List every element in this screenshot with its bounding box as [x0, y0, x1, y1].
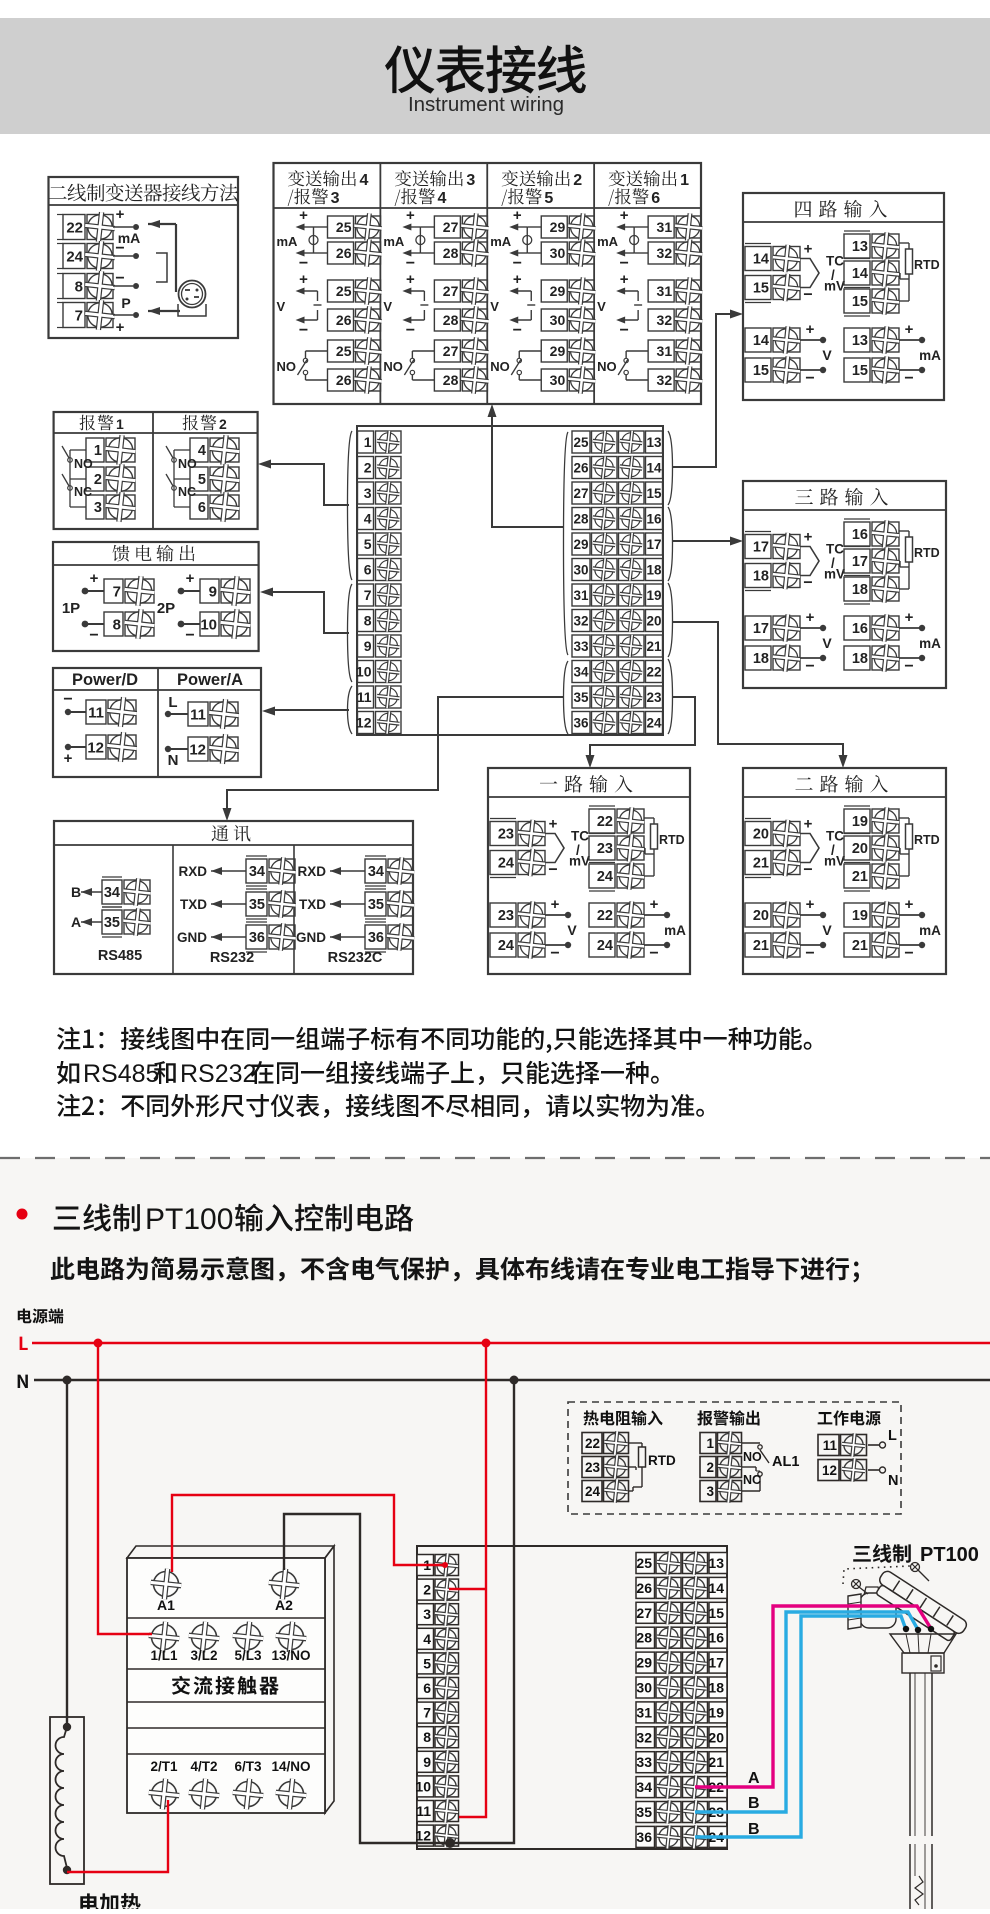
- svg-text:GND: GND: [177, 930, 207, 945]
- svg-text:25: 25: [336, 343, 352, 359]
- svg-text:V: V: [490, 299, 499, 314]
- svg-text:−: −: [803, 862, 812, 879]
- svg-text:13: 13: [852, 239, 868, 255]
- svg-text:NO: NO: [490, 359, 510, 374]
- svg-text:N: N: [168, 752, 179, 769]
- svg-text:9: 9: [364, 638, 372, 654]
- svg-text:+: +: [406, 271, 415, 288]
- svg-text:+: +: [806, 609, 815, 626]
- svg-text:2: 2: [364, 460, 372, 476]
- svg-text:2: 2: [706, 1460, 714, 1475]
- svg-text:29: 29: [636, 1655, 652, 1671]
- svg-text:−: −: [63, 691, 72, 708]
- svg-text:19: 19: [708, 1704, 724, 1720]
- svg-text:6: 6: [651, 190, 660, 207]
- svg-text:2: 2: [219, 416, 227, 432]
- svg-text:Power/A: Power/A: [177, 671, 243, 689]
- svg-text:29: 29: [550, 283, 566, 299]
- svg-text:11: 11: [823, 1438, 838, 1453]
- svg-text:+: +: [806, 896, 815, 913]
- svg-text:18: 18: [708, 1680, 724, 1696]
- svg-text:20: 20: [753, 908, 769, 924]
- svg-text:4: 4: [360, 172, 369, 189]
- svg-text:13: 13: [708, 1555, 724, 1571]
- svg-text:21: 21: [753, 938, 769, 954]
- svg-text:+: +: [186, 570, 195, 587]
- svg-text:18: 18: [852, 651, 868, 667]
- svg-text:34: 34: [104, 885, 120, 901]
- svg-text:−: −: [649, 945, 658, 962]
- svg-text:V: V: [822, 635, 832, 651]
- svg-text:+: +: [116, 319, 125, 336]
- svg-text:31: 31: [573, 588, 589, 603]
- svg-text:10: 10: [356, 664, 372, 680]
- svg-text:19: 19: [646, 588, 661, 603]
- svg-text:21: 21: [852, 938, 868, 954]
- svg-text:14/NO: 14/NO: [271, 1759, 310, 1774]
- svg-text:26: 26: [336, 312, 352, 328]
- svg-text:15: 15: [753, 281, 769, 297]
- svg-text:24: 24: [585, 1484, 601, 1499]
- svg-text:32: 32: [657, 245, 673, 261]
- svg-text:19: 19: [852, 814, 868, 830]
- svg-text:12: 12: [415, 1828, 431, 1844]
- svg-text:mA: mA: [919, 348, 941, 363]
- svg-text:RTD: RTD: [659, 833, 685, 847]
- svg-text:34: 34: [636, 1779, 652, 1795]
- svg-text:12: 12: [822, 1463, 837, 1478]
- svg-text:mA: mA: [919, 636, 941, 651]
- svg-text:V: V: [383, 299, 392, 314]
- svg-text:35: 35: [573, 690, 589, 705]
- svg-text:3: 3: [466, 172, 475, 189]
- svg-text:+: +: [406, 207, 415, 224]
- svg-text:−: −: [513, 255, 522, 272]
- svg-text:TC: TC: [826, 542, 844, 557]
- svg-text:NO: NO: [178, 457, 197, 471]
- svg-text:Power/D: Power/D: [72, 671, 138, 689]
- svg-text:17: 17: [646, 537, 661, 552]
- svg-text:36: 36: [573, 716, 589, 731]
- svg-text:B: B: [748, 1821, 760, 1838]
- svg-text:31: 31: [657, 343, 673, 359]
- svg-text:−: −: [406, 322, 415, 339]
- svg-text:V: V: [597, 299, 606, 314]
- svg-text:26: 26: [336, 245, 352, 261]
- svg-text:23: 23: [585, 1460, 601, 1475]
- svg-text:4: 4: [198, 443, 206, 459]
- svg-text:−: −: [550, 945, 559, 962]
- svg-text:−: −: [805, 370, 814, 387]
- svg-text:−: −: [299, 322, 308, 339]
- svg-text:29: 29: [550, 343, 566, 359]
- svg-text:10: 10: [200, 616, 217, 633]
- svg-text:1/L1: 1/L1: [150, 1648, 178, 1663]
- svg-text:9: 9: [209, 583, 217, 600]
- svg-text:27: 27: [443, 283, 459, 299]
- svg-text:2: 2: [423, 1582, 431, 1598]
- svg-text:TXD: TXD: [299, 897, 326, 912]
- svg-text:−: −: [513, 322, 522, 339]
- svg-text:−: −: [89, 627, 98, 644]
- svg-text:18: 18: [852, 582, 868, 598]
- svg-text:26: 26: [336, 372, 352, 388]
- svg-text:24: 24: [498, 938, 514, 954]
- svg-text:23: 23: [646, 690, 662, 705]
- svg-text:36: 36: [368, 930, 384, 946]
- svg-text:36: 36: [636, 1829, 652, 1845]
- svg-text:RTD: RTD: [648, 1453, 676, 1468]
- svg-text:−: −: [904, 370, 913, 387]
- svg-text:20: 20: [708, 1729, 724, 1745]
- svg-text:30: 30: [550, 312, 566, 328]
- svg-text:30: 30: [573, 563, 588, 578]
- svg-text:15: 15: [852, 363, 868, 379]
- svg-text:mA: mA: [664, 923, 686, 938]
- svg-text:7: 7: [113, 583, 121, 600]
- svg-text:21: 21: [753, 856, 769, 872]
- svg-text:+: +: [806, 321, 815, 338]
- svg-text:30: 30: [636, 1680, 652, 1696]
- svg-text:15: 15: [852, 294, 868, 310]
- svg-text:36: 36: [249, 930, 265, 946]
- svg-text:5: 5: [364, 536, 372, 552]
- svg-text:14: 14: [646, 461, 662, 476]
- svg-text:+: +: [549, 816, 558, 833]
- svg-text:6: 6: [364, 562, 372, 578]
- svg-text:P: P: [121, 295, 130, 311]
- svg-text:5/L3: 5/L3: [234, 1648, 262, 1663]
- svg-text:13: 13: [852, 333, 868, 349]
- svg-text:+: +: [513, 271, 522, 288]
- svg-text:+: +: [513, 207, 522, 224]
- svg-text:25: 25: [336, 283, 352, 299]
- svg-text:26: 26: [573, 461, 589, 476]
- svg-text:27: 27: [636, 1605, 652, 1621]
- svg-text:RS485: RS485: [83, 1060, 159, 1088]
- svg-text:25: 25: [573, 435, 589, 450]
- svg-text:NC: NC: [178, 485, 196, 499]
- svg-text:mA: mA: [597, 234, 619, 249]
- svg-text:+: +: [116, 206, 125, 223]
- svg-text:34: 34: [368, 864, 384, 880]
- svg-text:32: 32: [636, 1729, 652, 1745]
- svg-text:31: 31: [657, 283, 673, 299]
- svg-text:A1: A1: [157, 1597, 175, 1613]
- svg-text:16: 16: [852, 621, 868, 637]
- svg-text:22: 22: [585, 1436, 600, 1451]
- svg-text:12: 12: [356, 715, 372, 731]
- svg-text:2P: 2P: [157, 600, 175, 617]
- svg-text:22: 22: [597, 908, 613, 924]
- svg-text:17: 17: [753, 621, 769, 637]
- svg-text:18: 18: [753, 569, 769, 585]
- svg-text:7: 7: [423, 1705, 431, 1721]
- svg-text:AL1: AL1: [772, 1454, 799, 1470]
- svg-text:mV: mV: [824, 279, 845, 294]
- svg-text:30: 30: [550, 372, 566, 388]
- svg-text:RTD: RTD: [914, 833, 940, 847]
- svg-text:PT100: PT100: [920, 1544, 979, 1566]
- svg-text:1: 1: [706, 1436, 714, 1451]
- svg-text:2: 2: [573, 172, 582, 189]
- svg-text:RXD: RXD: [178, 864, 207, 879]
- svg-text:21: 21: [708, 1754, 724, 1770]
- svg-text:2/T1: 2/T1: [150, 1759, 178, 1774]
- svg-text:B: B: [748, 1795, 760, 1812]
- svg-text:29: 29: [573, 537, 588, 552]
- svg-text:6/T3: 6/T3: [234, 1759, 262, 1774]
- svg-text:27: 27: [443, 219, 459, 235]
- svg-text:14: 14: [753, 252, 769, 268]
- svg-text:35: 35: [249, 897, 265, 913]
- svg-text:V: V: [277, 299, 286, 314]
- svg-text:+: +: [804, 529, 813, 546]
- svg-text:35: 35: [636, 1804, 652, 1820]
- svg-text:25: 25: [636, 1555, 652, 1571]
- svg-text:−: −: [803, 287, 812, 304]
- svg-text:11: 11: [416, 1803, 431, 1819]
- svg-text:V: V: [822, 347, 832, 363]
- svg-text:mV: mV: [569, 854, 590, 869]
- svg-text:32: 32: [573, 614, 588, 629]
- svg-text:24: 24: [597, 869, 613, 885]
- svg-text:5: 5: [544, 190, 553, 207]
- svg-text:28: 28: [573, 512, 589, 527]
- svg-text:NC: NC: [743, 1473, 761, 1487]
- svg-text:−: −: [619, 255, 628, 272]
- svg-text:−: −: [904, 945, 913, 962]
- svg-text:16: 16: [852, 527, 868, 543]
- svg-text:−: −: [619, 322, 628, 339]
- svg-text:TXD: TXD: [180, 897, 207, 912]
- svg-text:NO: NO: [74, 457, 93, 471]
- svg-text:NO: NO: [743, 1450, 762, 1464]
- svg-text:17: 17: [708, 1655, 724, 1671]
- svg-text:−: −: [803, 575, 812, 592]
- svg-text:mV: mV: [824, 854, 845, 869]
- svg-text:−: −: [548, 862, 557, 879]
- svg-text:11: 11: [190, 706, 206, 723]
- svg-text:4: 4: [423, 1631, 431, 1647]
- svg-text:1: 1: [364, 434, 372, 450]
- svg-text:28: 28: [443, 312, 459, 328]
- svg-text:−: −: [805, 945, 814, 962]
- svg-text:3: 3: [94, 500, 102, 516]
- svg-text:19: 19: [852, 908, 868, 924]
- svg-text:28: 28: [636, 1630, 652, 1646]
- svg-text:GND: GND: [296, 930, 326, 945]
- svg-text:8: 8: [75, 278, 83, 295]
- svg-text:3/L2: 3/L2: [190, 1648, 217, 1663]
- svg-text:21: 21: [852, 869, 868, 885]
- svg-text:14: 14: [852, 266, 868, 282]
- svg-text:RS232C: RS232C: [328, 950, 383, 966]
- svg-text:23: 23: [597, 841, 613, 857]
- svg-text:−: −: [299, 255, 308, 272]
- svg-text:−: −: [805, 658, 814, 675]
- svg-text:24: 24: [597, 938, 613, 954]
- svg-text:18: 18: [646, 563, 662, 578]
- svg-text:+: +: [650, 896, 659, 913]
- svg-text:+: +: [299, 207, 308, 224]
- svg-text:+: +: [90, 570, 99, 587]
- svg-text:TC: TC: [826, 829, 844, 844]
- svg-text:+: +: [804, 241, 813, 258]
- svg-text:20: 20: [753, 827, 769, 843]
- svg-text:17: 17: [852, 554, 868, 570]
- svg-text:13: 13: [646, 435, 662, 450]
- svg-text:+: +: [64, 750, 73, 767]
- svg-text:Instrument wiring: Instrument wiring: [408, 93, 564, 116]
- svg-text:6: 6: [423, 1680, 431, 1696]
- svg-text:3: 3: [331, 190, 340, 207]
- svg-text:32: 32: [657, 372, 673, 388]
- svg-text:mV: mV: [824, 567, 845, 582]
- svg-text:4/T2: 4/T2: [190, 1759, 217, 1774]
- svg-text:33: 33: [636, 1754, 652, 1770]
- svg-text:NO: NO: [383, 359, 403, 374]
- svg-text:+: +: [905, 321, 914, 338]
- svg-text:14: 14: [708, 1580, 724, 1596]
- svg-text:20: 20: [646, 614, 661, 629]
- svg-text:31: 31: [636, 1704, 652, 1720]
- svg-text:24: 24: [66, 248, 83, 265]
- svg-text:8: 8: [113, 616, 121, 633]
- svg-text:5: 5: [423, 1655, 431, 1671]
- svg-text:V: V: [822, 922, 832, 938]
- svg-text:4: 4: [364, 511, 372, 527]
- svg-text:mA: mA: [919, 923, 941, 938]
- svg-text:7: 7: [75, 307, 83, 324]
- svg-text:RS232: RS232: [180, 1060, 256, 1088]
- svg-text:−: −: [185, 627, 194, 644]
- svg-text:1P: 1P: [62, 600, 80, 617]
- svg-text:RS485: RS485: [98, 948, 142, 964]
- svg-text:B: B: [71, 884, 81, 900]
- svg-text:16: 16: [646, 512, 662, 527]
- svg-text:24: 24: [498, 856, 514, 872]
- svg-text:15: 15: [708, 1605, 724, 1621]
- svg-text:32: 32: [657, 312, 673, 328]
- svg-text:7: 7: [364, 587, 372, 603]
- svg-text:33: 33: [573, 639, 589, 654]
- svg-text:27: 27: [443, 343, 459, 359]
- svg-text:−: −: [115, 240, 124, 257]
- svg-text:RXD: RXD: [297, 864, 326, 879]
- svg-text:RTD: RTD: [914, 546, 940, 560]
- svg-text:TC: TC: [826, 254, 844, 269]
- svg-text:1: 1: [116, 416, 124, 432]
- svg-text:34: 34: [573, 665, 589, 680]
- svg-text:3: 3: [706, 1484, 714, 1499]
- svg-text:8: 8: [423, 1729, 431, 1745]
- svg-text:28: 28: [443, 245, 459, 261]
- svg-text:29: 29: [550, 219, 566, 235]
- svg-text:23: 23: [498, 827, 514, 843]
- svg-text:30: 30: [550, 245, 566, 261]
- svg-text:21: 21: [646, 639, 662, 654]
- svg-text:13/NO: 13/NO: [271, 1648, 310, 1663]
- svg-text:22: 22: [597, 814, 613, 830]
- svg-text:31: 31: [657, 219, 673, 235]
- svg-text:25: 25: [336, 219, 352, 235]
- svg-text:6: 6: [198, 500, 206, 516]
- svg-text:mA: mA: [490, 234, 512, 249]
- svg-text:NO: NO: [597, 359, 617, 374]
- svg-text:11: 11: [88, 704, 104, 721]
- svg-text:9: 9: [423, 1754, 431, 1770]
- svg-text:20: 20: [852, 841, 868, 857]
- svg-text:17: 17: [753, 540, 769, 556]
- svg-text:RS232: RS232: [210, 950, 254, 966]
- svg-text:1: 1: [94, 443, 102, 459]
- svg-text:28: 28: [443, 372, 459, 388]
- svg-text:TC: TC: [571, 829, 589, 844]
- svg-text:27: 27: [573, 486, 588, 501]
- svg-text:1: 1: [680, 172, 689, 189]
- svg-text:4: 4: [438, 190, 447, 207]
- svg-text:15: 15: [753, 363, 769, 379]
- svg-text:5: 5: [198, 472, 206, 488]
- svg-text:+: +: [551, 896, 560, 913]
- svg-text:14: 14: [753, 333, 769, 349]
- svg-text:18: 18: [753, 651, 769, 667]
- svg-text:V: V: [567, 922, 577, 938]
- svg-text:+: +: [905, 609, 914, 626]
- svg-text:mA: mA: [383, 234, 405, 249]
- svg-text:A2: A2: [275, 1597, 293, 1613]
- svg-text:+: +: [620, 271, 629, 288]
- svg-text:23: 23: [498, 908, 514, 924]
- svg-text:+: +: [299, 271, 308, 288]
- svg-text:12: 12: [189, 741, 206, 758]
- svg-text:L: L: [888, 1428, 897, 1444]
- svg-text:24: 24: [646, 716, 662, 731]
- svg-text:−: −: [904, 658, 913, 675]
- svg-text:L: L: [168, 694, 177, 711]
- svg-text:22: 22: [66, 219, 83, 236]
- svg-text:NO: NO: [277, 359, 297, 374]
- svg-text:NC: NC: [74, 485, 92, 499]
- svg-text:−: −: [115, 270, 124, 287]
- svg-text:10: 10: [415, 1778, 431, 1794]
- svg-text:11: 11: [357, 689, 372, 705]
- svg-text:N: N: [888, 1473, 898, 1489]
- svg-text:35: 35: [368, 897, 384, 913]
- svg-text:16: 16: [708, 1630, 724, 1646]
- svg-text:15: 15: [646, 486, 662, 501]
- svg-text:12: 12: [87, 739, 104, 756]
- svg-text:PT100: PT100: [145, 1203, 233, 1236]
- svg-text:−: −: [406, 255, 415, 272]
- svg-text:mA: mA: [277, 234, 299, 249]
- svg-text:3: 3: [364, 485, 372, 501]
- svg-text:34: 34: [249, 864, 265, 880]
- svg-text:3: 3: [423, 1606, 431, 1622]
- svg-text:A: A: [71, 914, 81, 930]
- svg-text:8: 8: [364, 613, 372, 629]
- svg-text:RTD: RTD: [914, 258, 940, 272]
- svg-text:35: 35: [104, 915, 120, 931]
- svg-text:A: A: [748, 1770, 760, 1787]
- svg-text:+: +: [620, 207, 629, 224]
- svg-text:22: 22: [646, 665, 661, 680]
- svg-text:2: 2: [94, 472, 102, 488]
- svg-text:+: +: [905, 896, 914, 913]
- svg-text:+: +: [804, 816, 813, 833]
- svg-text:26: 26: [636, 1580, 652, 1596]
